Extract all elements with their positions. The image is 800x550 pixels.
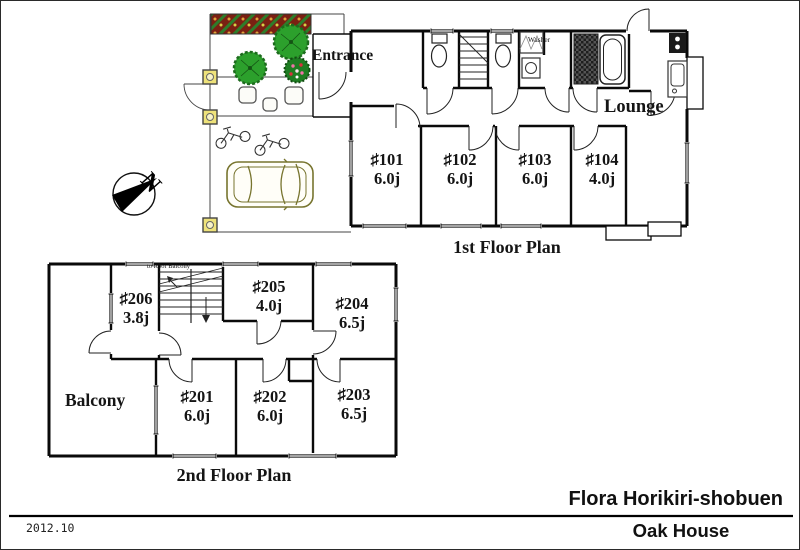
room-number: ♯203 xyxy=(319,385,389,404)
room-label-201: ♯201 6.0j xyxy=(162,387,232,425)
stairs-icon xyxy=(459,34,488,79)
stove-icon xyxy=(669,33,686,53)
entrance-label: Entrance xyxy=(312,47,373,65)
room-number: ♯202 xyxy=(235,387,305,406)
room-size: 6.5j xyxy=(319,404,389,423)
bay-window xyxy=(687,57,703,109)
room-label-204: ♯204 6.5j xyxy=(317,294,387,332)
room-size: 6.0j xyxy=(235,406,305,425)
balcony-label: Balcony xyxy=(65,390,125,411)
date-label: 2012.10 xyxy=(26,521,74,535)
room-size: 3.8j xyxy=(101,308,171,327)
room-number: ♯205 xyxy=(234,277,304,296)
room-size: 6.0j xyxy=(162,406,232,425)
door-arcs xyxy=(89,321,340,382)
room-label-102: ♯102 6.0j xyxy=(425,150,495,188)
roof-balcony-note: to Roof Balcony xyxy=(147,263,190,270)
first-floor-plan xyxy=(313,9,703,240)
room-label-101: ♯101 6.0j xyxy=(352,150,422,188)
car-icon xyxy=(227,159,313,210)
room-label-205: ♯205 4.0j xyxy=(234,277,304,315)
room-size: 4.0j xyxy=(567,169,637,188)
room-label-103: ♯103 6.0j xyxy=(500,150,570,188)
kitchen-sink-icon xyxy=(668,61,687,97)
door-arc xyxy=(319,72,346,99)
floor-plan-drawing: N xyxy=(1,1,800,550)
room-label-203: ♯203 6.5j xyxy=(319,385,389,423)
room-number: ♯102 xyxy=(425,150,495,169)
room-size: 6.0j xyxy=(500,169,570,188)
flower-shrub-icon xyxy=(285,58,310,83)
room-size: 6.0j xyxy=(352,169,422,188)
toilet-icon xyxy=(432,34,448,67)
gate-door-arc xyxy=(184,84,210,110)
room-number: ♯204 xyxy=(317,294,387,313)
room-number: ♯101 xyxy=(352,150,422,169)
room-number: ♯103 xyxy=(500,150,570,169)
bicycle-icon xyxy=(252,130,291,157)
lounge-label: Lounge xyxy=(604,97,664,118)
bathroom xyxy=(574,34,625,84)
room-label-104: ♯104 4.0j xyxy=(567,150,637,188)
first-floor-plan-title: 1st Floor Plan xyxy=(437,237,577,258)
room-size: 6.5j xyxy=(317,313,387,332)
stepping-stones xyxy=(239,87,303,111)
room-number: ♯201 xyxy=(162,387,232,406)
bathtub-icon xyxy=(600,35,625,84)
toilet-icon xyxy=(496,34,512,67)
room-label-202: ♯202 6.0j xyxy=(235,387,305,425)
tree-icon xyxy=(234,52,266,84)
bicycle-icon xyxy=(213,123,252,150)
kitchen xyxy=(668,33,687,97)
room-number: ♯104 xyxy=(567,150,637,169)
compass-icon: N xyxy=(112,168,166,215)
second-floor-plan-title: 2nd Floor Plan xyxy=(164,465,304,486)
room-number: ♯206 xyxy=(101,289,171,308)
sink-icon xyxy=(522,58,540,78)
washer-label: Washer xyxy=(519,35,559,44)
room-label-206: ♯206 3.8j xyxy=(101,289,171,327)
parking-area xyxy=(213,123,313,210)
room-size: 6.0j xyxy=(425,169,495,188)
floor-plan-sheet: N xyxy=(0,0,800,550)
tree-icon xyxy=(274,25,308,59)
building-name: Oak House xyxy=(566,520,796,542)
property-name: Flora Horikiri-shobuen xyxy=(421,488,783,511)
room-size: 4.0j xyxy=(234,296,304,315)
